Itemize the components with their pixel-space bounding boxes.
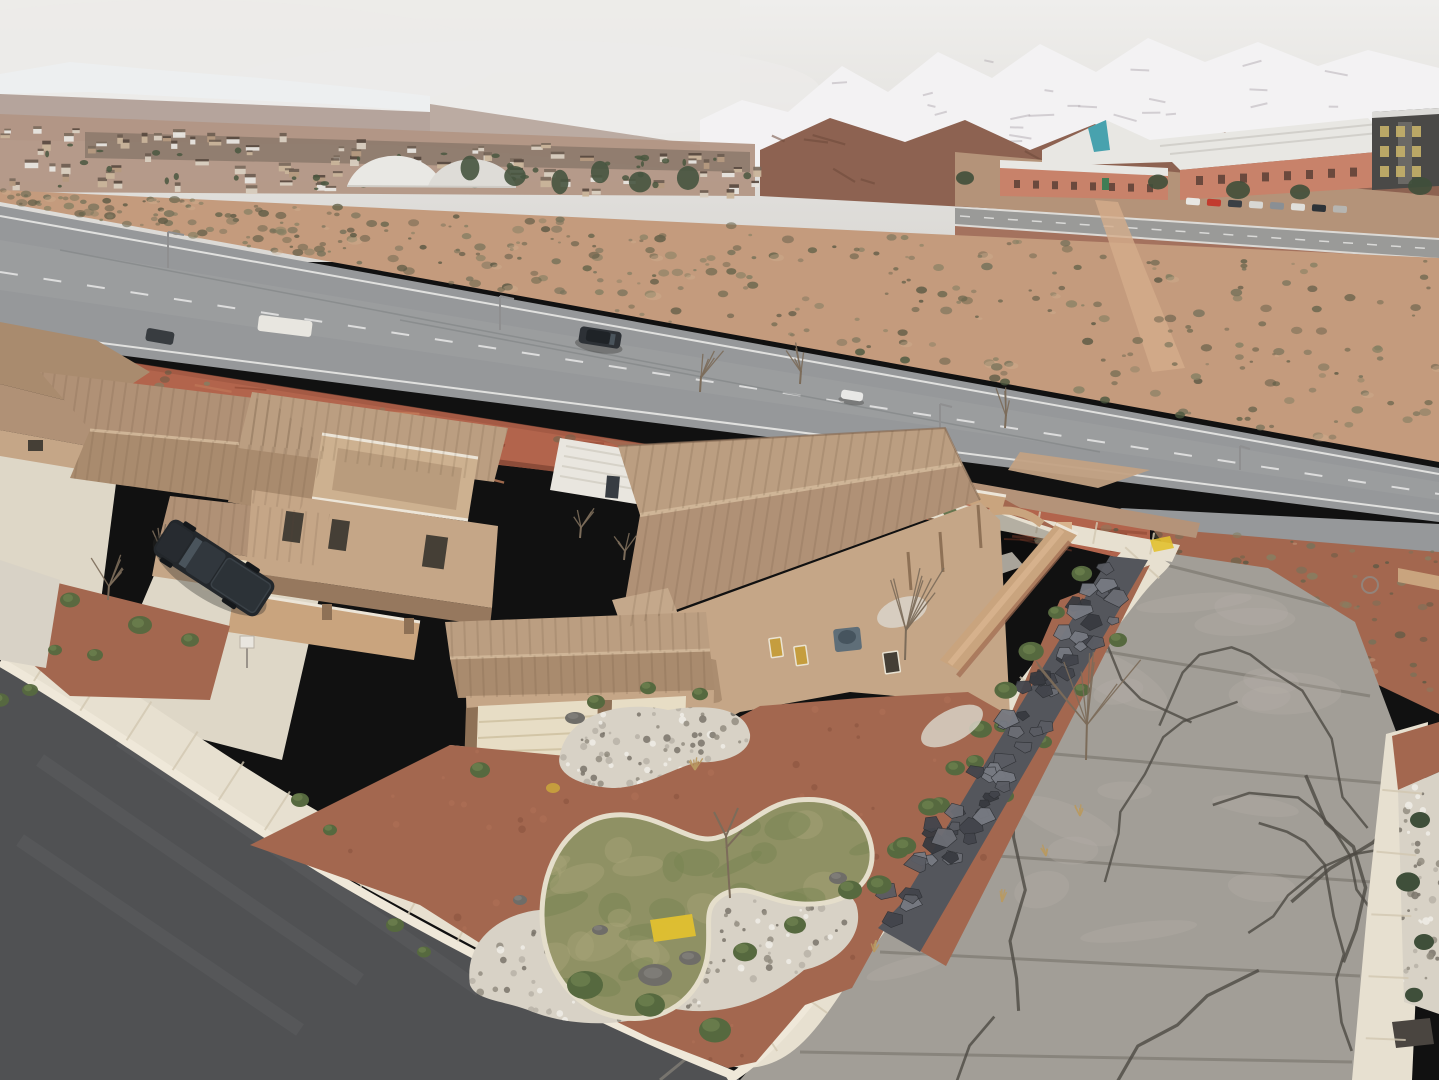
scrub-dot bbox=[1377, 356, 1384, 360]
rock-speckle bbox=[1433, 867, 1438, 872]
town-house bbox=[704, 159, 710, 169]
town-house bbox=[325, 186, 337, 191]
scrub-dot bbox=[1395, 631, 1406, 638]
scrub-dot bbox=[102, 198, 111, 204]
rock-speckle bbox=[703, 978, 709, 984]
rock-speckle bbox=[528, 991, 534, 997]
scrub-dot bbox=[80, 200, 87, 204]
scrub-dot bbox=[1420, 637, 1428, 642]
mulch-dot bbox=[493, 899, 500, 906]
mulch-dot bbox=[879, 709, 885, 715]
scrub-dot bbox=[1410, 304, 1421, 311]
conifer-tree bbox=[677, 166, 699, 190]
scrub-dot bbox=[107, 214, 114, 218]
scrub-dot bbox=[1100, 255, 1107, 260]
scrub-dot bbox=[898, 329, 908, 336]
mulch-dot bbox=[392, 746, 397, 751]
scrub-dot bbox=[1307, 286, 1317, 293]
scrub-dot bbox=[1426, 287, 1430, 290]
scrub-dot bbox=[290, 246, 293, 248]
scrub-dot bbox=[1110, 370, 1121, 377]
scrub-dot bbox=[597, 278, 604, 282]
town-house bbox=[227, 137, 240, 144]
scrub-dot bbox=[665, 251, 677, 259]
snow-rock-streak bbox=[1078, 106, 1097, 107]
scrub-dot bbox=[1419, 408, 1431, 416]
scrub-dot bbox=[298, 244, 309, 251]
scrub-dot bbox=[1410, 673, 1417, 677]
scrub-dot bbox=[280, 222, 284, 224]
shrub-highlight bbox=[897, 839, 909, 848]
scrub-dot bbox=[836, 339, 847, 346]
scrub-dot bbox=[1201, 344, 1212, 351]
rock-speckle bbox=[697, 1001, 701, 1005]
shrub-highlight bbox=[998, 684, 1009, 693]
shrub-highlight bbox=[1050, 607, 1058, 613]
scrub-dot bbox=[360, 235, 371, 242]
mulch-dot bbox=[530, 807, 536, 813]
rec-window bbox=[1128, 184, 1134, 192]
rock-speckle bbox=[1407, 909, 1410, 912]
rock-speckle bbox=[1419, 920, 1422, 923]
mulch-dot bbox=[486, 825, 492, 831]
scrub-dot bbox=[1235, 354, 1244, 360]
town-house bbox=[142, 133, 148, 143]
scrub-dot bbox=[1310, 263, 1318, 268]
rock-speckle bbox=[841, 920, 847, 926]
rock-speckle bbox=[599, 752, 604, 757]
scrub-dot bbox=[19, 203, 23, 205]
scrub-dot bbox=[1060, 240, 1070, 247]
mulch-dot bbox=[944, 696, 951, 703]
town-house bbox=[246, 185, 257, 194]
scrub-dot bbox=[1073, 386, 1084, 393]
town-house bbox=[727, 189, 735, 198]
scrub-dot bbox=[1316, 327, 1327, 334]
scrub-dot bbox=[64, 203, 75, 210]
rock-speckle bbox=[709, 961, 712, 964]
rock-speckle bbox=[690, 743, 695, 748]
scrub-dot bbox=[1357, 378, 1364, 383]
town-house bbox=[175, 182, 181, 192]
scrub-dot bbox=[453, 214, 460, 218]
scrub-dot bbox=[1187, 329, 1193, 333]
scrub-dot bbox=[1093, 302, 1102, 308]
snow-rock-streak bbox=[1166, 114, 1176, 115]
shrub-highlight bbox=[948, 762, 958, 769]
scrub-dot bbox=[117, 210, 122, 213]
scrub-dot bbox=[1300, 269, 1308, 274]
shrub-highlight bbox=[786, 917, 798, 926]
scrub-dot bbox=[595, 248, 603, 253]
scrub-dot bbox=[706, 255, 715, 261]
rock-speckle bbox=[714, 734, 720, 740]
town-tree bbox=[491, 154, 499, 158]
town-house bbox=[351, 148, 361, 156]
sand-patch bbox=[503, 285, 518, 293]
shrub-highlight bbox=[132, 618, 144, 628]
scrub-dot bbox=[441, 223, 446, 227]
roadside-shrub bbox=[1175, 412, 1185, 419]
rec-window bbox=[1306, 170, 1313, 179]
scrub-dot bbox=[593, 271, 597, 273]
scrub-dot bbox=[907, 279, 911, 282]
sand-patch bbox=[1274, 355, 1279, 357]
scrub-dot bbox=[1373, 564, 1379, 568]
rock-speckle bbox=[531, 930, 536, 935]
mulch-dot bbox=[811, 706, 818, 713]
scrub-dot bbox=[616, 279, 622, 283]
mulch-dot bbox=[871, 807, 874, 810]
scrub-dot bbox=[1426, 687, 1433, 692]
rock-speckle bbox=[828, 934, 833, 939]
sand-patch bbox=[1293, 543, 1297, 545]
sand-patch bbox=[645, 292, 661, 300]
scrub-dot bbox=[1296, 567, 1307, 574]
shrub-highlight bbox=[472, 763, 483, 771]
snow-rock-streak bbox=[832, 82, 847, 83]
scrub-dot bbox=[1418, 604, 1428, 610]
scrub-dot bbox=[142, 200, 145, 202]
scrub-dot bbox=[746, 275, 752, 279]
aerial-photo-canvas bbox=[0, 0, 1439, 1080]
town-house bbox=[339, 146, 345, 151]
mulch-dot bbox=[475, 750, 479, 754]
town-tree bbox=[641, 161, 644, 167]
scrub-dot bbox=[188, 232, 199, 239]
scrub-dot bbox=[469, 280, 481, 288]
scrub-dot bbox=[1420, 274, 1428, 279]
scrub-dot bbox=[1172, 362, 1178, 366]
rock-speckle bbox=[613, 738, 620, 745]
lit-window bbox=[1380, 166, 1389, 177]
scrub-dot bbox=[1409, 551, 1414, 554]
scrub-dot bbox=[1413, 411, 1420, 416]
sand-patch bbox=[1050, 311, 1056, 314]
scrub-dot bbox=[1334, 420, 1338, 423]
rock-speckle bbox=[577, 769, 580, 772]
shrub-highlight bbox=[50, 645, 57, 651]
scrub-dot bbox=[1205, 363, 1209, 365]
shrub-highlight bbox=[63, 594, 73, 602]
mulch-dot bbox=[369, 666, 375, 672]
scrub-dot bbox=[1319, 373, 1326, 378]
scrub-dot bbox=[356, 261, 362, 265]
rock-speckle bbox=[598, 780, 604, 786]
scrub-dot bbox=[916, 287, 927, 294]
scrub-dot bbox=[1309, 388, 1317, 393]
scrub-dot bbox=[1099, 315, 1110, 322]
town-house bbox=[171, 141, 177, 149]
town-house bbox=[114, 181, 123, 189]
scrub-dot bbox=[1258, 321, 1266, 326]
town-tree bbox=[80, 160, 88, 165]
scrub-dot bbox=[294, 223, 299, 226]
rock-speckle bbox=[599, 721, 603, 725]
rock-speckle bbox=[720, 725, 727, 732]
town-house bbox=[333, 171, 343, 177]
rock-speckle bbox=[799, 962, 806, 969]
town-house bbox=[331, 158, 340, 165]
wall-pillar bbox=[322, 604, 332, 620]
town-house bbox=[700, 171, 707, 177]
scrub-dot bbox=[1101, 359, 1106, 362]
rec-tree bbox=[1408, 177, 1432, 195]
rock-speckle bbox=[1411, 892, 1419, 900]
scrub-dot bbox=[334, 213, 340, 217]
rock-speckle bbox=[674, 747, 680, 753]
scrub-dot bbox=[952, 285, 960, 290]
scrub-dot bbox=[617, 289, 628, 296]
rec-tree bbox=[1148, 175, 1168, 190]
town-house bbox=[88, 146, 96, 154]
scrub-dot bbox=[151, 217, 158, 221]
mulch-dot bbox=[391, 794, 395, 798]
rock-speckle bbox=[522, 966, 527, 971]
rock-speckle bbox=[721, 744, 726, 749]
scrub-dot bbox=[652, 274, 656, 277]
mulch-dot bbox=[708, 769, 715, 776]
rock-speckle bbox=[744, 738, 748, 742]
rock-speckle bbox=[1414, 908, 1417, 911]
scrub-dot bbox=[21, 191, 32, 198]
sand-patch bbox=[1362, 392, 1374, 398]
scrub-dot bbox=[873, 251, 879, 255]
rock-speckle bbox=[510, 970, 516, 976]
town-tree bbox=[292, 176, 297, 180]
mulch-dot bbox=[461, 801, 467, 807]
scrub-dot bbox=[705, 263, 709, 266]
scrub-dot bbox=[1390, 592, 1394, 594]
scrub-dot bbox=[253, 235, 264, 242]
scrub-dot bbox=[566, 235, 570, 238]
rock-speckle bbox=[637, 712, 641, 716]
window bbox=[422, 535, 448, 570]
town-tree bbox=[165, 177, 169, 184]
town-house bbox=[0, 133, 9, 138]
scrub-dot bbox=[804, 328, 810, 332]
scrub-dot bbox=[905, 256, 909, 258]
scrub-dot bbox=[743, 286, 748, 289]
rock-speckle bbox=[493, 987, 499, 993]
rock-speckle bbox=[580, 766, 587, 773]
scrub-dot bbox=[989, 374, 1000, 381]
scrub-dot bbox=[726, 268, 736, 275]
scrub-dot bbox=[504, 254, 513, 260]
scrub-dot bbox=[627, 272, 632, 275]
mulch-dot bbox=[563, 798, 569, 804]
sand-patch bbox=[191, 200, 199, 204]
scrub-dot bbox=[206, 227, 214, 232]
rec-window bbox=[1262, 172, 1269, 181]
scrub-dot bbox=[645, 247, 654, 253]
scrub-dot bbox=[893, 267, 898, 270]
rock-speckle bbox=[500, 957, 507, 964]
scrub-dot bbox=[1425, 556, 1432, 560]
town-house bbox=[551, 152, 565, 159]
scrub-dot bbox=[269, 228, 275, 232]
town-tree bbox=[636, 166, 640, 169]
scrub-dot bbox=[1424, 400, 1432, 405]
wall-stone bbox=[963, 833, 976, 845]
town-tree bbox=[45, 151, 49, 158]
window bbox=[28, 440, 43, 451]
town-house bbox=[72, 128, 79, 133]
scrub-dot bbox=[531, 277, 542, 284]
rock-speckle bbox=[786, 959, 791, 964]
boulder-highlight bbox=[594, 926, 603, 931]
shrub-highlight bbox=[1023, 645, 1036, 655]
scrub-dot bbox=[850, 253, 859, 259]
scrub-dot bbox=[204, 382, 210, 386]
scrub-dot bbox=[723, 262, 731, 267]
scrub-dot bbox=[971, 290, 977, 294]
rock-speckle bbox=[478, 971, 483, 976]
sand-patch bbox=[1314, 434, 1329, 441]
sand-patch bbox=[492, 264, 502, 269]
rock-speckle bbox=[1414, 964, 1419, 969]
scrub-dot bbox=[640, 234, 649, 240]
scrub-dot bbox=[1245, 417, 1251, 421]
town-house bbox=[357, 139, 366, 149]
scrub-dot bbox=[165, 370, 172, 375]
scrub-dot bbox=[782, 235, 794, 243]
scrub-dot bbox=[411, 232, 415, 235]
lit-window bbox=[1412, 146, 1421, 157]
scrub-dot bbox=[808, 247, 817, 253]
mulch-dot bbox=[462, 926, 466, 930]
rock-speckle bbox=[738, 740, 741, 743]
scrub-dot bbox=[866, 345, 871, 348]
rock-speckle bbox=[681, 742, 685, 746]
shrub-highlight bbox=[694, 688, 703, 694]
scrub-dot bbox=[288, 227, 298, 234]
scrub-dot bbox=[1312, 306, 1322, 312]
scrub-dot bbox=[541, 226, 550, 232]
scrub-dot bbox=[1062, 245, 1073, 252]
town-house bbox=[163, 136, 171, 141]
shrub-highlight bbox=[922, 801, 934, 810]
mulch-dot bbox=[416, 725, 423, 732]
town-tree bbox=[314, 188, 318, 190]
scrub-dot bbox=[1240, 555, 1245, 558]
scrub-dot bbox=[522, 242, 528, 246]
boulder-highlight bbox=[568, 713, 579, 719]
scrub-dot bbox=[332, 204, 343, 211]
scrub-dot bbox=[448, 225, 451, 227]
rock-speckle bbox=[1407, 831, 1410, 834]
scrub-dot bbox=[328, 251, 331, 253]
mulch-dot bbox=[427, 721, 433, 727]
mulch-dot bbox=[402, 752, 406, 756]
snow-rock-streak bbox=[1130, 70, 1149, 71]
scrub-dot bbox=[1331, 553, 1338, 558]
scrub-dot bbox=[1127, 352, 1133, 356]
rock-speckle bbox=[683, 721, 689, 727]
scrub-dot bbox=[718, 291, 728, 298]
roadside-shrub bbox=[1000, 379, 1010, 386]
scrub-dot bbox=[1240, 264, 1247, 269]
rec-tree bbox=[1226, 181, 1250, 199]
terracotta-pot bbox=[546, 783, 560, 793]
shrub-highlight bbox=[735, 944, 748, 954]
town-house bbox=[98, 178, 107, 188]
rec-window bbox=[1090, 182, 1096, 190]
scrub-dot bbox=[1402, 416, 1412, 423]
scrub-dot bbox=[1372, 618, 1377, 621]
sand-patch bbox=[1052, 294, 1061, 299]
scrub-dot bbox=[1273, 348, 1284, 355]
town-house bbox=[582, 189, 589, 197]
town-house bbox=[478, 146, 484, 151]
scrub-dot bbox=[448, 281, 454, 285]
scrub-dot bbox=[1372, 346, 1383, 353]
conifer-tree bbox=[552, 170, 569, 194]
rock-speckle bbox=[753, 899, 757, 903]
bare-tree bbox=[574, 508, 594, 538]
shrub-highlight bbox=[968, 756, 978, 763]
scrub-dot bbox=[1318, 363, 1329, 370]
town-house bbox=[688, 158, 696, 163]
scrub-dot bbox=[1306, 543, 1315, 549]
town-house bbox=[209, 140, 221, 146]
rock-speckle bbox=[1417, 858, 1424, 865]
shrub bbox=[1396, 872, 1420, 891]
scrub-dot bbox=[558, 242, 561, 244]
rock-speckle bbox=[738, 965, 745, 972]
rock-speckle bbox=[663, 762, 667, 766]
scrub-dot bbox=[1168, 329, 1173, 332]
aerial-photo bbox=[0, 0, 1439, 1080]
rock-speckle bbox=[1428, 916, 1433, 921]
rock-speckle bbox=[786, 933, 790, 937]
scrub-dot bbox=[937, 291, 947, 297]
scrub-dot bbox=[981, 263, 993, 270]
scrub-dot bbox=[28, 199, 38, 206]
rock-speckle bbox=[585, 739, 590, 744]
scrub-dot bbox=[637, 282, 640, 284]
town-house bbox=[33, 126, 41, 134]
town-house bbox=[751, 181, 759, 187]
parked-car bbox=[1333, 205, 1347, 213]
scrub-dot bbox=[1154, 316, 1164, 323]
rock-speckle bbox=[707, 969, 711, 973]
scrub-dot bbox=[37, 203, 42, 206]
scrub-dot bbox=[1113, 528, 1118, 531]
scrub-dot bbox=[571, 241, 579, 246]
dark-paver bbox=[1392, 1018, 1434, 1048]
scrub-dot bbox=[1151, 260, 1160, 266]
rock-speckle bbox=[742, 928, 745, 931]
scrub-dot bbox=[1164, 342, 1173, 348]
scrub-dot bbox=[940, 307, 952, 315]
scrub-dot bbox=[257, 225, 267, 232]
scrub-dot bbox=[956, 301, 961, 304]
sand-patch bbox=[187, 206, 195, 210]
scrub-dot bbox=[516, 241, 520, 244]
scrub-dot bbox=[1233, 532, 1242, 538]
scrub-dot bbox=[993, 357, 999, 361]
scrub-dot bbox=[1007, 242, 1012, 245]
rock-speckle bbox=[572, 1001, 575, 1004]
rock-speckle bbox=[1405, 802, 1413, 810]
rec-window bbox=[1052, 181, 1058, 189]
scrub-dot bbox=[294, 234, 299, 238]
mulch-dot bbox=[980, 854, 987, 861]
scrub-dot bbox=[1423, 260, 1427, 263]
town-house bbox=[541, 177, 551, 187]
scrub-dot bbox=[462, 233, 472, 239]
